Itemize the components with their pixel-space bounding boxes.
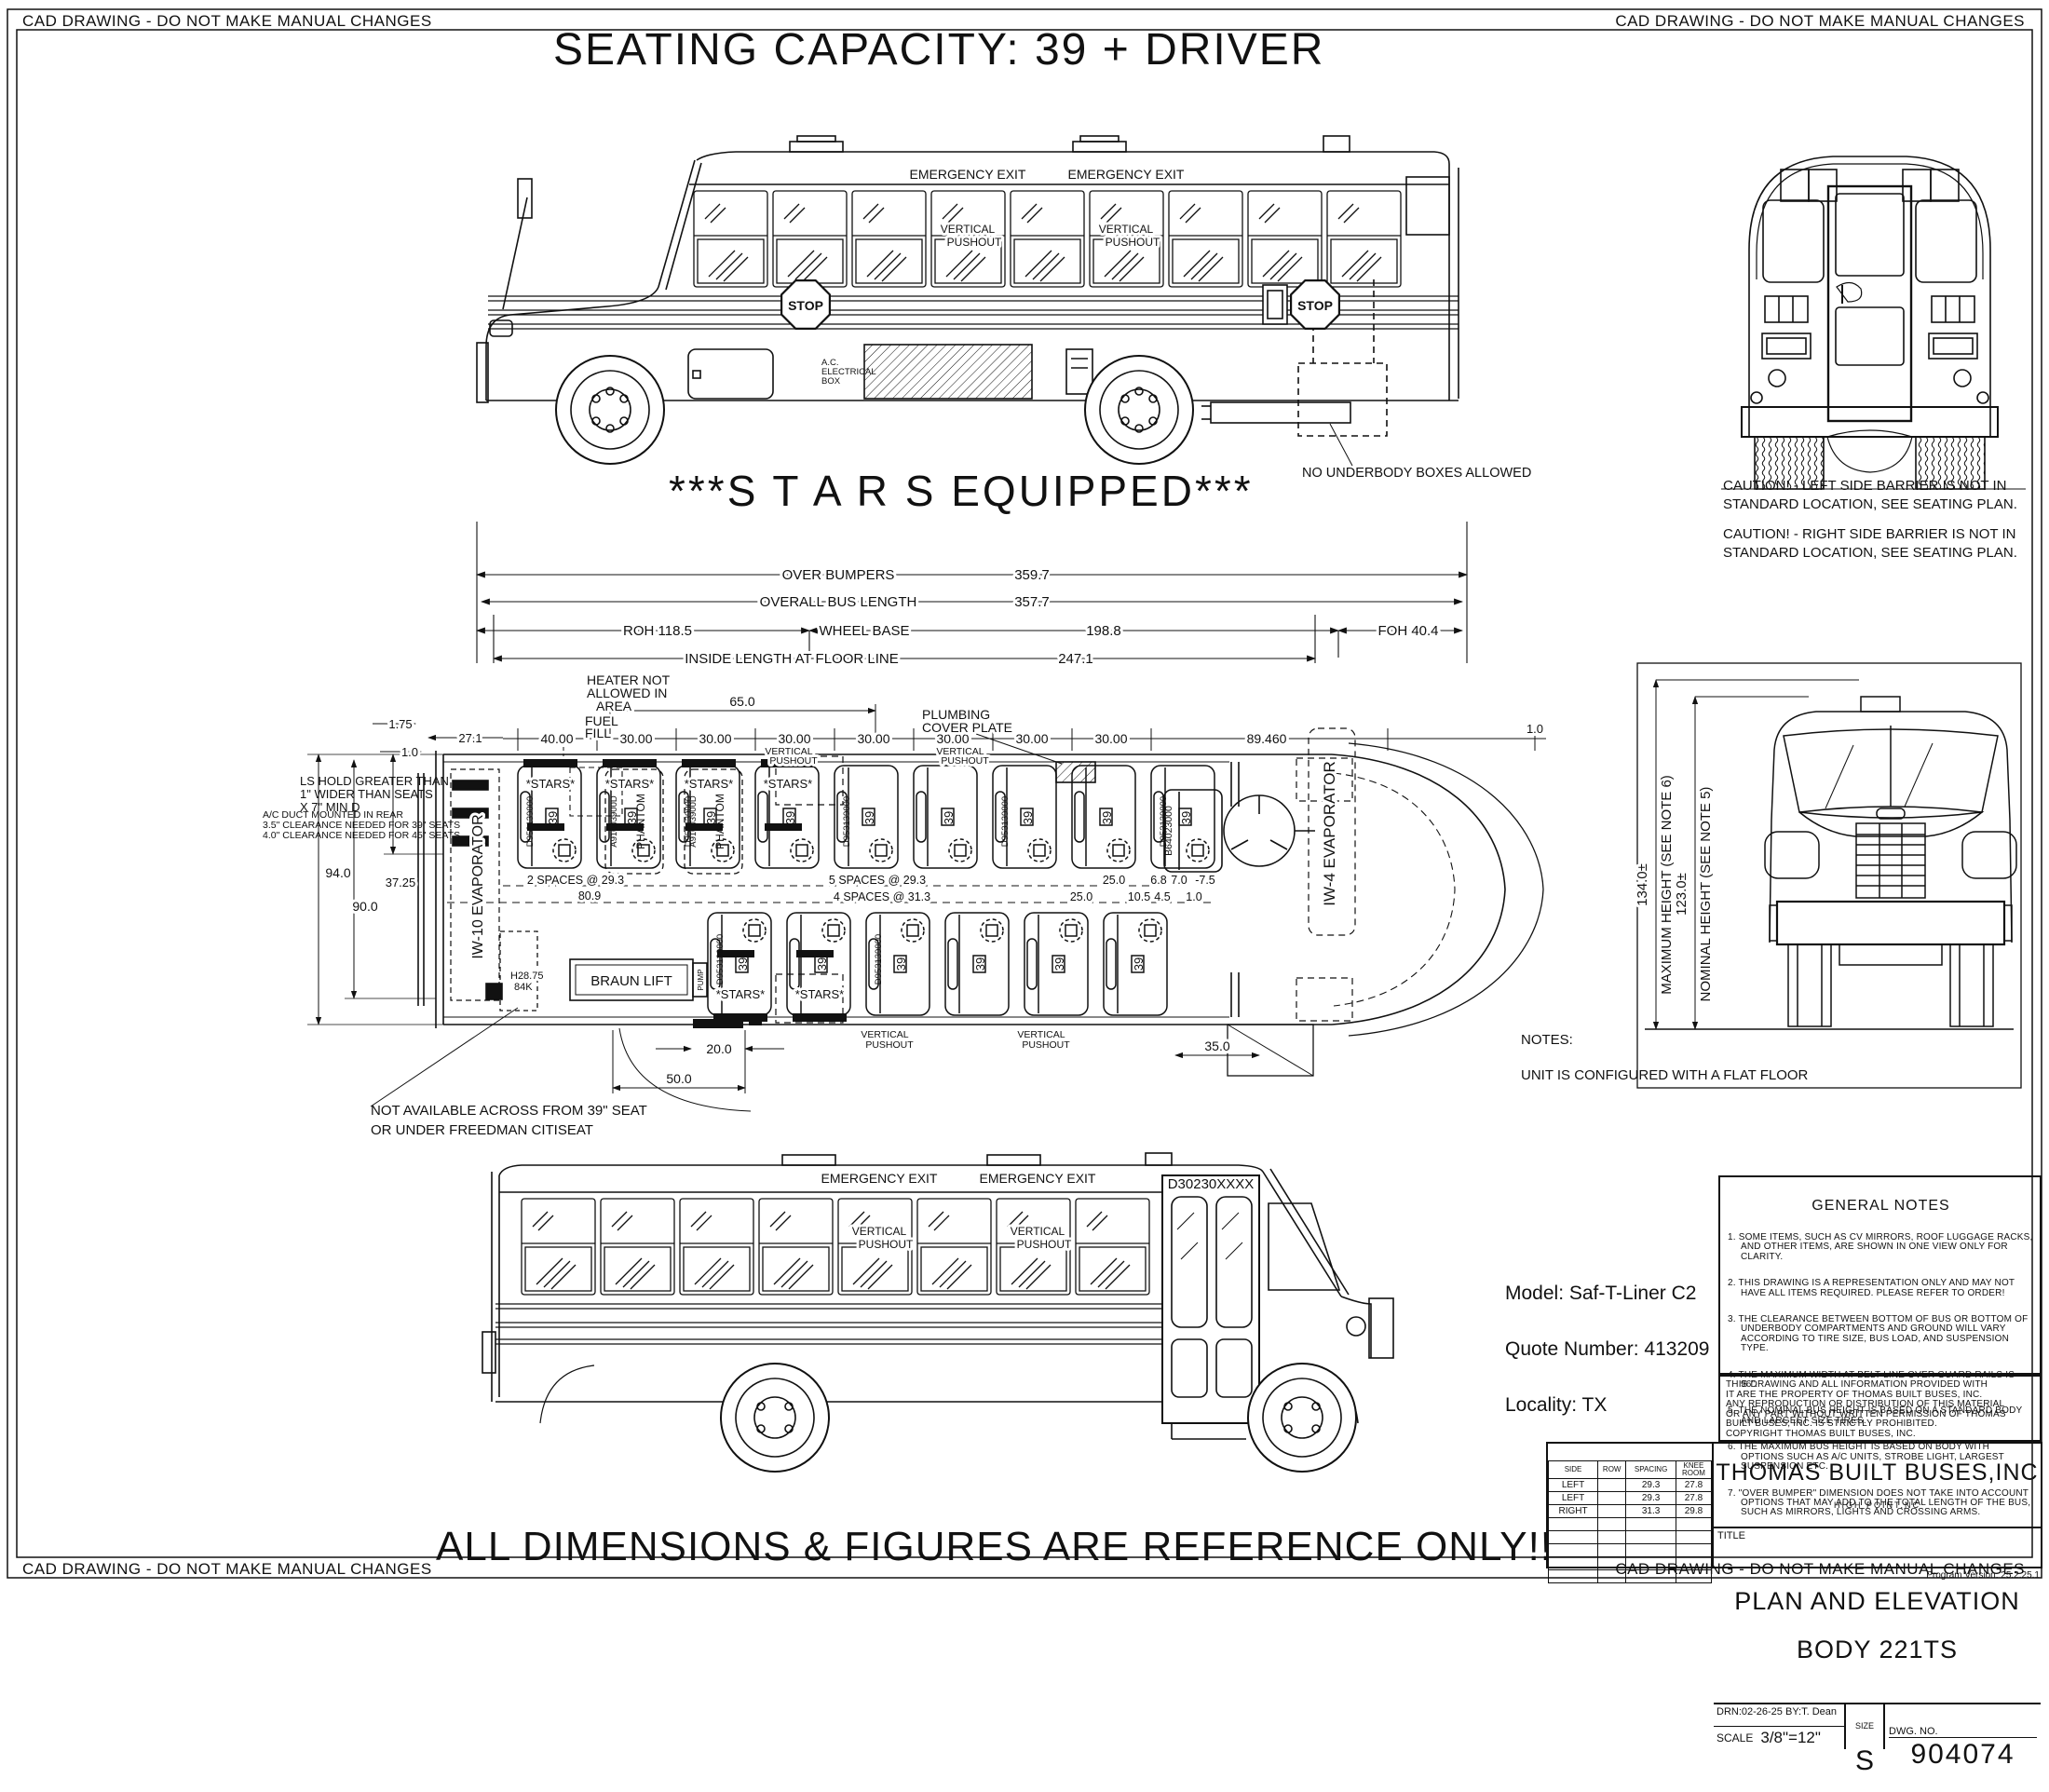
svg-text:39: 39 [1021, 811, 1035, 824]
svg-text:30.00: 30.00 [699, 731, 731, 746]
svg-text:84K: 84K [514, 982, 533, 993]
svg-text:25.0: 25.0 [1070, 890, 1092, 903]
svg-text:BOX: BOX [821, 376, 841, 387]
emergency-exit-label: EMERGENCY EXIT [910, 167, 1026, 182]
svg-text:COVER PLATE: COVER PLATE [922, 720, 1012, 735]
svg-text:4 SPACES @ 31.3: 4 SPACES @ 31.3 [834, 890, 930, 903]
svg-text:39: 39 [862, 811, 876, 824]
svg-text:H28.75: H28.75 [510, 971, 543, 982]
svg-text:PHANTOM: PHANTOM [713, 794, 726, 849]
svg-text:PHANTOM: PHANTOM [634, 794, 647, 849]
svg-text:39: 39 [1100, 811, 1114, 824]
svg-text:PUSHOUT: PUSHOUT [1022, 1039, 1070, 1051]
table-row [1549, 1518, 1712, 1531]
svg-text:A91003900D: A91003900D [688, 795, 699, 848]
svg-text:39: 39 [1179, 811, 1193, 824]
table-row [1549, 1544, 1712, 1557]
svg-text:2 SPACES @ 29.3: 2 SPACES @ 29.3 [527, 874, 624, 887]
svg-text:247.1: 247.1 [1058, 651, 1093, 667]
table-row [1549, 1570, 1712, 1583]
scale-label: SCALE [1717, 1731, 1753, 1744]
col-side: SIDE [1549, 1461, 1598, 1479]
svg-text:39: 39 [894, 957, 908, 971]
svg-text:80.9: 80.9 [578, 889, 601, 903]
svg-text:*STARS*: *STARS* [795, 987, 845, 1001]
svg-text:7.0: 7.0 [1171, 874, 1187, 887]
col-spacing: SPACING [1626, 1461, 1676, 1479]
svg-text:90.0: 90.0 [352, 899, 377, 914]
stop-text: STOP [1297, 298, 1333, 313]
svg-text:39: 39 [1132, 957, 1146, 971]
svg-text:359.7: 359.7 [1014, 567, 1050, 583]
svg-text:39: 39 [1052, 957, 1066, 971]
front-view-labels: 134.0± MAXIMUM HEIGHT (SEE NOTE 6) 123.0… [1635, 775, 1714, 1001]
no-underbody-note: NO UNDERBODY BOXES ALLOWED [1302, 466, 1531, 481]
model-label: Model: Saf-T-Liner C2 [1505, 1280, 1709, 1308]
ac-duct-note: A/C DUCT MOUNTED IN REAR 3.5" CLEARANCE … [263, 810, 460, 841]
general-notes-title: GENERAL NOTES [1728, 1198, 2034, 1215]
svg-text:39: 39 [973, 957, 987, 971]
lift-availability-note: NOT AVAILABLE ACROSS FROM 39" SEAT OR UN… [371, 1101, 647, 1140]
svg-text:89.460: 89.460 [1247, 731, 1287, 746]
svg-text:*STARS*: *STARS* [764, 777, 813, 791]
emergency-exit-label: EMERGENCY EXIT [1068, 167, 1185, 182]
dwg-no-value: 904074 [1889, 1739, 2037, 1771]
svg-text:40.00: 40.00 [540, 731, 573, 746]
svg-text:1.0: 1.0 [1527, 722, 1543, 736]
svg-text:PUSHOUT: PUSHOUT [1106, 236, 1160, 249]
svg-text:198.8: 198.8 [1086, 623, 1121, 639]
stop-text: STOP [788, 298, 823, 313]
company-location: HIGH POINT,NC [1714, 1501, 2041, 1510]
svg-text:D953139000: D953139000 [715, 934, 726, 984]
svg-text:INSIDE LENGTH AT FLOOR LINE: INSIDE LENGTH AT FLOOR LINE [685, 651, 899, 667]
svg-text:AREA: AREA [596, 699, 632, 713]
size-value: S [1846, 1747, 1883, 1775]
svg-text:123.0±: 123.0± [1674, 873, 1689, 916]
plan-text-labels: HEATER NOT ALLOWED IN AREA FUEL FILL PLU… [470, 672, 1338, 1001]
caution-right-note: CAUTION! - RIGHT SIDE BARRIER IS NOT IN … [1723, 525, 2017, 563]
svg-text:50.0: 50.0 [666, 1071, 691, 1086]
svg-text:PUMP: PUMP [697, 969, 705, 990]
evaporator-left-label: IW-10 EVAPORATOR [470, 814, 486, 958]
table-row [1549, 1557, 1712, 1570]
svg-text:D953139000: D953139000 [525, 796, 536, 847]
scale-value: 3/8"=12" [1760, 1729, 1821, 1747]
reference-only-banner: ALL DIMENSIONS & FIGURES ARE REFERENCE O… [436, 1524, 1553, 1570]
table-row: LEFT29.327.8 [1549, 1479, 1712, 1492]
svg-text:VERTICAL: VERTICAL [852, 1225, 907, 1238]
col-kneeroom: KNEE ROOM [1676, 1461, 1711, 1479]
svg-text:30.00: 30.00 [619, 731, 652, 746]
svg-text:WHEEL BASE: WHEEL BASE [820, 623, 910, 639]
svg-text:PUSHOUT: PUSHOUT [1017, 1238, 1072, 1251]
svg-text:FILL: FILL [585, 726, 611, 740]
evaporator-right-label: IW-4 EVAPORATOR [1321, 761, 1338, 906]
svg-text:PUSHOUT: PUSHOUT [859, 1238, 914, 1251]
svg-text:1.0: 1.0 [401, 745, 418, 759]
svg-text:25.0: 25.0 [1103, 874, 1125, 887]
entry-door [1162, 1175, 1259, 1423]
svg-text:PUSHOUT: PUSHOUT [947, 236, 1002, 249]
svg-text:39: 39 [783, 811, 797, 824]
stars-equipped-banner: ***S T A R S EQUIPPED*** [669, 466, 1254, 516]
svg-text:OVERALL BUS LENGTH: OVERALL BUS LENGTH [760, 594, 917, 610]
svg-text:65.0: 65.0 [729, 694, 754, 709]
general-note: 3. THE CLEARANCE BETWEEN BOTTOM OF BUS O… [1728, 1315, 2034, 1354]
quote-label: Quote Number: 413209 [1505, 1336, 1709, 1364]
svg-text:VERTICAL: VERTICAL [1011, 1225, 1065, 1238]
svg-text:*STARS*: *STARS* [716, 987, 766, 1001]
svg-text:357.7: 357.7 [1014, 594, 1050, 610]
svg-text:VERTICAL: VERTICAL [1099, 223, 1154, 236]
table-row: LEFT29.327.8 [1549, 1492, 1712, 1505]
svg-text:1.0: 1.0 [1186, 890, 1201, 903]
dwg-no-label: DWG. NO. [1889, 1726, 2037, 1738]
svg-text:FOH 40.4: FOH 40.4 [1377, 623, 1438, 639]
rear-view [1721, 156, 2026, 489]
rear-wheel [1085, 356, 1193, 464]
bottom-rear-wheel [721, 1364, 829, 1472]
side-windows [694, 191, 1401, 287]
caution-left-note: CAUTION! - LEFT SIDE BARRIER IS NOT IN S… [1723, 477, 2017, 514]
col-row: ROW [1598, 1461, 1626, 1479]
emergency-exit-label: EMERGENCY EXIT [980, 1171, 1096, 1186]
svg-text:OVER BUMPERS: OVER BUMPERS [782, 567, 895, 583]
svg-text:37.25: 37.25 [386, 876, 416, 889]
svg-text:10.5: 10.5 [1128, 890, 1150, 903]
svg-text:PUSHOUT: PUSHOUT [941, 755, 989, 767]
svg-text:PUSHOUT: PUSHOUT [865, 1039, 914, 1051]
door-part-label: D30230XXXX [1168, 1176, 1255, 1192]
svg-text:30.00: 30.00 [857, 731, 889, 746]
svg-text:5 SPACES @ 29.3: 5 SPACES @ 29.3 [829, 874, 926, 887]
svg-text:39: 39 [546, 811, 560, 824]
svg-text:30.00: 30.00 [778, 731, 810, 746]
svg-text:134.0±: 134.0± [1635, 863, 1650, 906]
svg-text:D953139000: D953139000 [874, 934, 884, 984]
locality-label: Locality: TX [1505, 1392, 1709, 1419]
notes-body: UNIT IS CONFIGURED WITH A FLAT FLOOR [1521, 1066, 1808, 1084]
plan-dimension-labels: 1.75 27.1 1.0 65.0 40.00 30.00 30.00 30.… [325, 694, 1543, 1086]
bottom-front-wheel [1248, 1364, 1356, 1472]
svg-text:ROH 118.5: ROH 118.5 [623, 623, 692, 639]
ac-condenser-hatched-box [864, 345, 1032, 399]
order-info-block: Model: Saf-T-Liner C2 Quote Number: 4132… [1505, 1252, 1709, 1447]
drawing-title-line2: BODY 221TS [1714, 1637, 2041, 1662]
size-label: SIZE [1846, 1721, 1883, 1731]
table-row: RIGHT31.329.8 [1549, 1505, 1712, 1518]
svg-text:D953139000: D953139000 [1000, 796, 1011, 847]
notes-block: NOTES: UNIT IS CONFIGURED WITH A FLAT FL… [1521, 1013, 1808, 1102]
front-wheel [556, 356, 664, 464]
page-title: SEATING CAPACITY: 39 + DRIVER [553, 24, 1324, 75]
corner-note: CAD DRAWING - DO NOT MAKE MANUAL CHANGES [22, 12, 432, 31]
max-height-label: MAXIMUM HEIGHT (SEE NOTE 6) [1659, 775, 1675, 995]
svg-text:35.0: 35.0 [1204, 1039, 1229, 1053]
svg-text:*STARS*: *STARS* [526, 777, 576, 791]
seat-spacing-table: SIDE ROW SPACING KNEE ROOM LEFT29.327.8 … [1548, 1444, 1714, 1567]
program-version: Program Version: 25.2.25.1 [1825, 1570, 2040, 1581]
svg-text:27.1: 27.1 [458, 731, 482, 745]
length-dimensions [477, 522, 1467, 663]
title-block: SIDE ROW SPACING KNEE ROOM LEFT29.327.8 … [1546, 1442, 2042, 1568]
svg-text:6.8: 6.8 [1150, 874, 1166, 887]
svg-text:-7.5: -7.5 [1195, 874, 1215, 887]
svg-text:*STARS*: *STARS* [605, 777, 655, 791]
company-name: THOMAS BUILT BUSES,INC [1714, 1461, 2041, 1485]
length-dimension-labels: OVER BUMPERS 359.7 OVERALL BUS LENGTH 35… [623, 567, 1438, 667]
svg-text:39: 39 [736, 957, 750, 971]
svg-text:30.00: 30.00 [1094, 731, 1127, 746]
svg-text:A91003900D: A91003900D [609, 795, 619, 848]
bottom-elevation-view [482, 1153, 1393, 1472]
notes-title: NOTES: [1521, 1031, 1808, 1049]
table-row [1549, 1531, 1712, 1544]
svg-text:4.5: 4.5 [1154, 890, 1170, 903]
svg-text:*STARS*: *STARS* [685, 777, 734, 791]
corner-note: CAD DRAWING - DO NOT MAKE MANUAL CHANGES [1615, 12, 2025, 31]
svg-text:VERTICAL: VERTICAL [941, 223, 996, 236]
svg-text:PUSHOUT: PUSHOUT [769, 755, 818, 767]
svg-text:30.00: 30.00 [1015, 731, 1048, 746]
svg-text:D953139000: D953139000 [842, 796, 852, 847]
svg-text:39: 39 [942, 811, 956, 824]
copyright-box: THIS DRAWING AND ALL INFORMATION PROVIDE… [1718, 1375, 2042, 1442]
emergency-exit-label: EMERGENCY EXIT [821, 1171, 938, 1186]
drawing-title-line1: PLAN AND ELEVATION [1714, 1589, 2041, 1613]
bottom-elevation-labels: EMERGENCY EXIT EMERGENCY EXIT VERTICAL P… [821, 1171, 1255, 1251]
svg-text:94.0: 94.0 [325, 865, 350, 880]
svg-text:B64023000: B64023000 [1163, 806, 1174, 856]
drawn-by: DRN:02-26-25 BY:T. Dean [1714, 1704, 1844, 1727]
title-label: TITLE [1717, 1530, 1745, 1541]
svg-text:20.0: 20.0 [706, 1041, 731, 1056]
hold-clearance-note: LS HOLD GREATER THAN 1" WIDER THAN SEATS… [300, 775, 449, 814]
general-note: 2. THIS DRAWING IS A REPRESENTATION ONLY… [1728, 1279, 2034, 1298]
svg-text:1.75: 1.75 [388, 717, 412, 731]
braun-lift-label: BRAUN LIFT [590, 973, 672, 989]
general-note: 1. SOME ITEMS, SUCH AS CV MIRRORS, ROOF … [1728, 1233, 2034, 1262]
svg-text:39: 39 [815, 957, 829, 971]
nominal-height-label: NOMINAL HEIGHT (SEE NOTE 5) [1698, 787, 1714, 1002]
seat-row-right [708, 913, 1167, 1015]
general-notes-box: GENERAL NOTES 1. SOME ITEMS, SUCH AS CV … [1718, 1175, 2042, 1375]
corner-note: CAD DRAWING - DO NOT MAKE MANUAL CHANGES [22, 1560, 432, 1579]
